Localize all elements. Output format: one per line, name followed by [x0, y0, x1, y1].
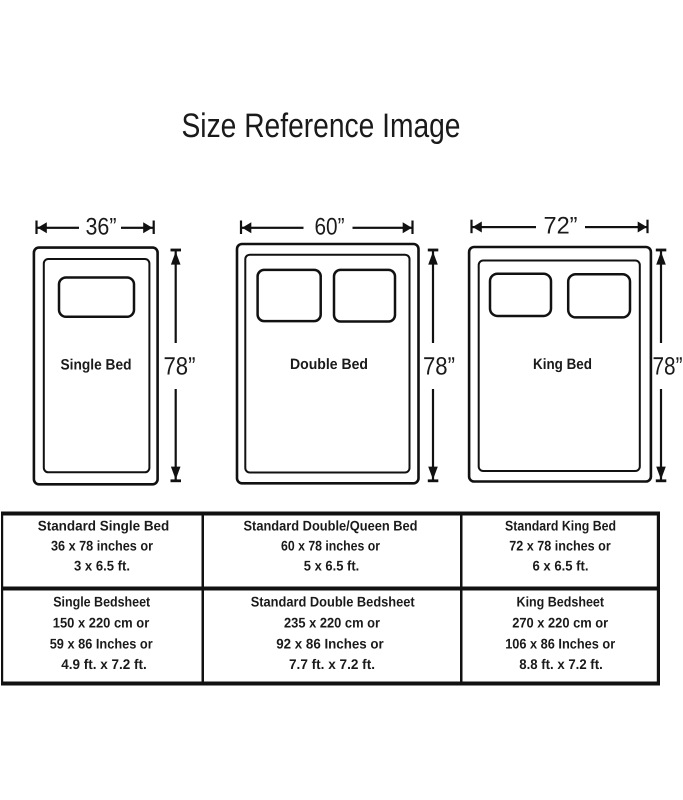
svg-text:59 x 86 Inches or: 59 x 86 Inches or: [50, 636, 154, 652]
svg-text:Double Bed: Double Bed: [290, 356, 368, 373]
svg-text:8.8 ft. x 7.2 ft.: 8.8 ft. x 7.2 ft.: [519, 656, 603, 672]
svg-text:72”: 72”: [544, 213, 578, 240]
svg-text:Single Bed: Single Bed: [61, 357, 132, 374]
svg-text:72 x 78 inches or: 72 x 78 inches or: [509, 538, 611, 554]
svg-text:Standard King Bed: Standard King Bed: [505, 518, 616, 534]
svg-text:106 x 86 Inches or: 106 x 86 Inches or: [505, 636, 615, 652]
svg-text:36”: 36”: [86, 214, 117, 241]
svg-text:Single Bedsheet: Single Bedsheet: [53, 594, 150, 610]
svg-text:5 x 6.5 ft.: 5 x 6.5 ft.: [304, 558, 360, 574]
svg-text:Size Reference Image: Size Reference Image: [182, 107, 461, 145]
svg-text:Standard Single Bed: Standard Single Bed: [38, 518, 170, 534]
svg-text:4.9 ft. x 7.2 ft.: 4.9 ft. x 7.2 ft.: [61, 656, 147, 672]
svg-text:60”: 60”: [315, 214, 345, 241]
svg-text:78”: 78”: [164, 353, 196, 381]
svg-text:Standard Double Bedsheet: Standard Double Bedsheet: [251, 594, 415, 610]
svg-text:92 x 86 Inches or: 92 x 86 Inches or: [276, 636, 384, 652]
svg-text:150 x 220 cm or: 150 x 220 cm or: [53, 615, 150, 631]
svg-text:7.7 ft. x 7.2 ft.: 7.7 ft. x 7.2 ft.: [289, 656, 375, 672]
svg-text:King Bedsheet: King Bedsheet: [517, 594, 605, 610]
svg-text:235 x 220 cm or: 235 x 220 cm or: [284, 615, 381, 631]
svg-text:King Bed: King Bed: [533, 356, 592, 373]
svg-text:Standard Double/Queen Bed: Standard Double/Queen Bed: [244, 518, 418, 534]
svg-text:78”: 78”: [423, 353, 455, 381]
svg-text:60 x 78 inches or: 60 x 78 inches or: [281, 538, 380, 554]
svg-text:270 x 220 cm or: 270 x 220 cm or: [512, 615, 609, 631]
svg-text:3 x 6.5 ft.: 3 x 6.5 ft.: [74, 558, 130, 574]
svg-text:6 x 6.5 ft.: 6 x 6.5 ft.: [533, 558, 589, 574]
svg-text:36 x 78 inches or: 36 x 78 inches or: [51, 538, 153, 554]
svg-text:78”: 78”: [653, 353, 683, 381]
